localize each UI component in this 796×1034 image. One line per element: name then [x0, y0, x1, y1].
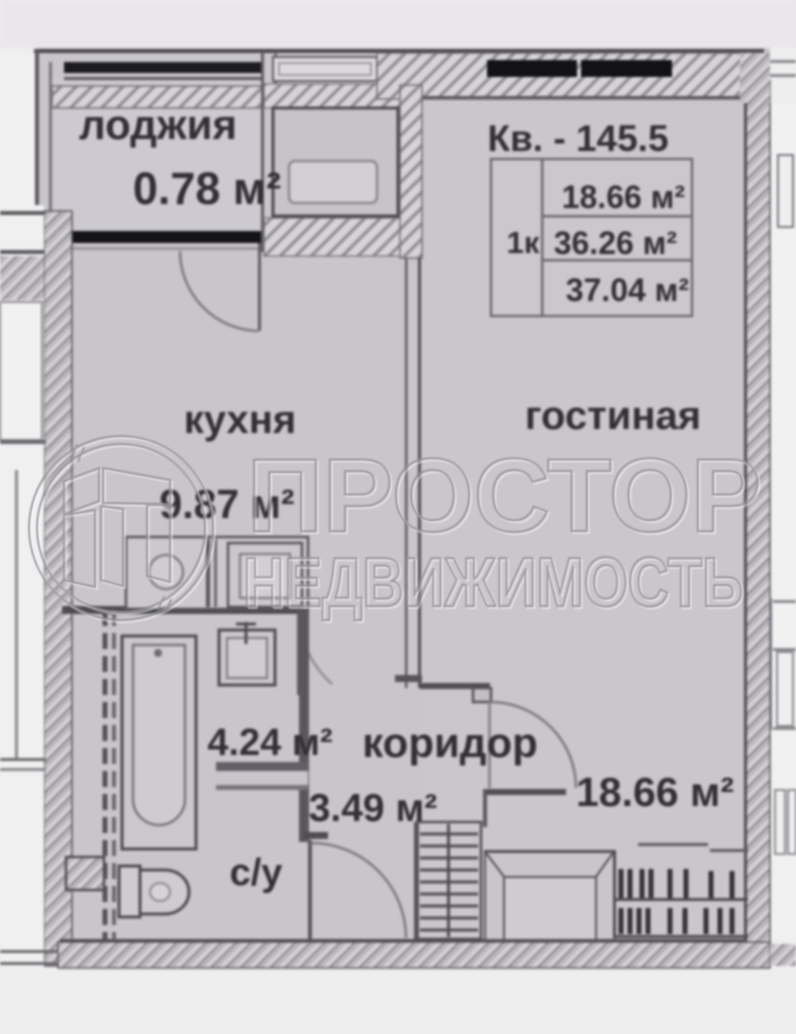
svg-text:4.24 м²: 4.24 м²	[207, 722, 332, 764]
svg-text:36.26 м²: 36.26 м²	[554, 225, 677, 261]
svg-text:НЕДВИЖИМОСТЬ: НЕДВИЖИМОСТЬ	[243, 543, 743, 621]
svg-text:1к: 1к	[507, 225, 540, 260]
svg-text:ПРОСТОР: ПРОСТОР	[247, 438, 761, 554]
svg-text:18.66 м²: 18.66 м²	[576, 769, 734, 815]
svg-text:коридор: коридор	[362, 719, 538, 766]
svg-text:Кв. - 145.5: Кв. - 145.5	[487, 118, 668, 159]
svg-text:лоджия: лоджия	[79, 101, 237, 148]
svg-text:3.49 м²: 3.49 м²	[309, 787, 438, 830]
svg-text:18.66 м²: 18.66 м²	[562, 179, 685, 215]
svg-text:с/у: с/у	[230, 852, 283, 894]
svg-text:0.78 м²: 0.78 м²	[133, 163, 281, 214]
svg-text:гостиная: гостиная	[525, 394, 701, 438]
svg-text:кухня: кухня	[184, 398, 297, 442]
svg-text:37.04 м²: 37.04 м²	[566, 272, 689, 308]
